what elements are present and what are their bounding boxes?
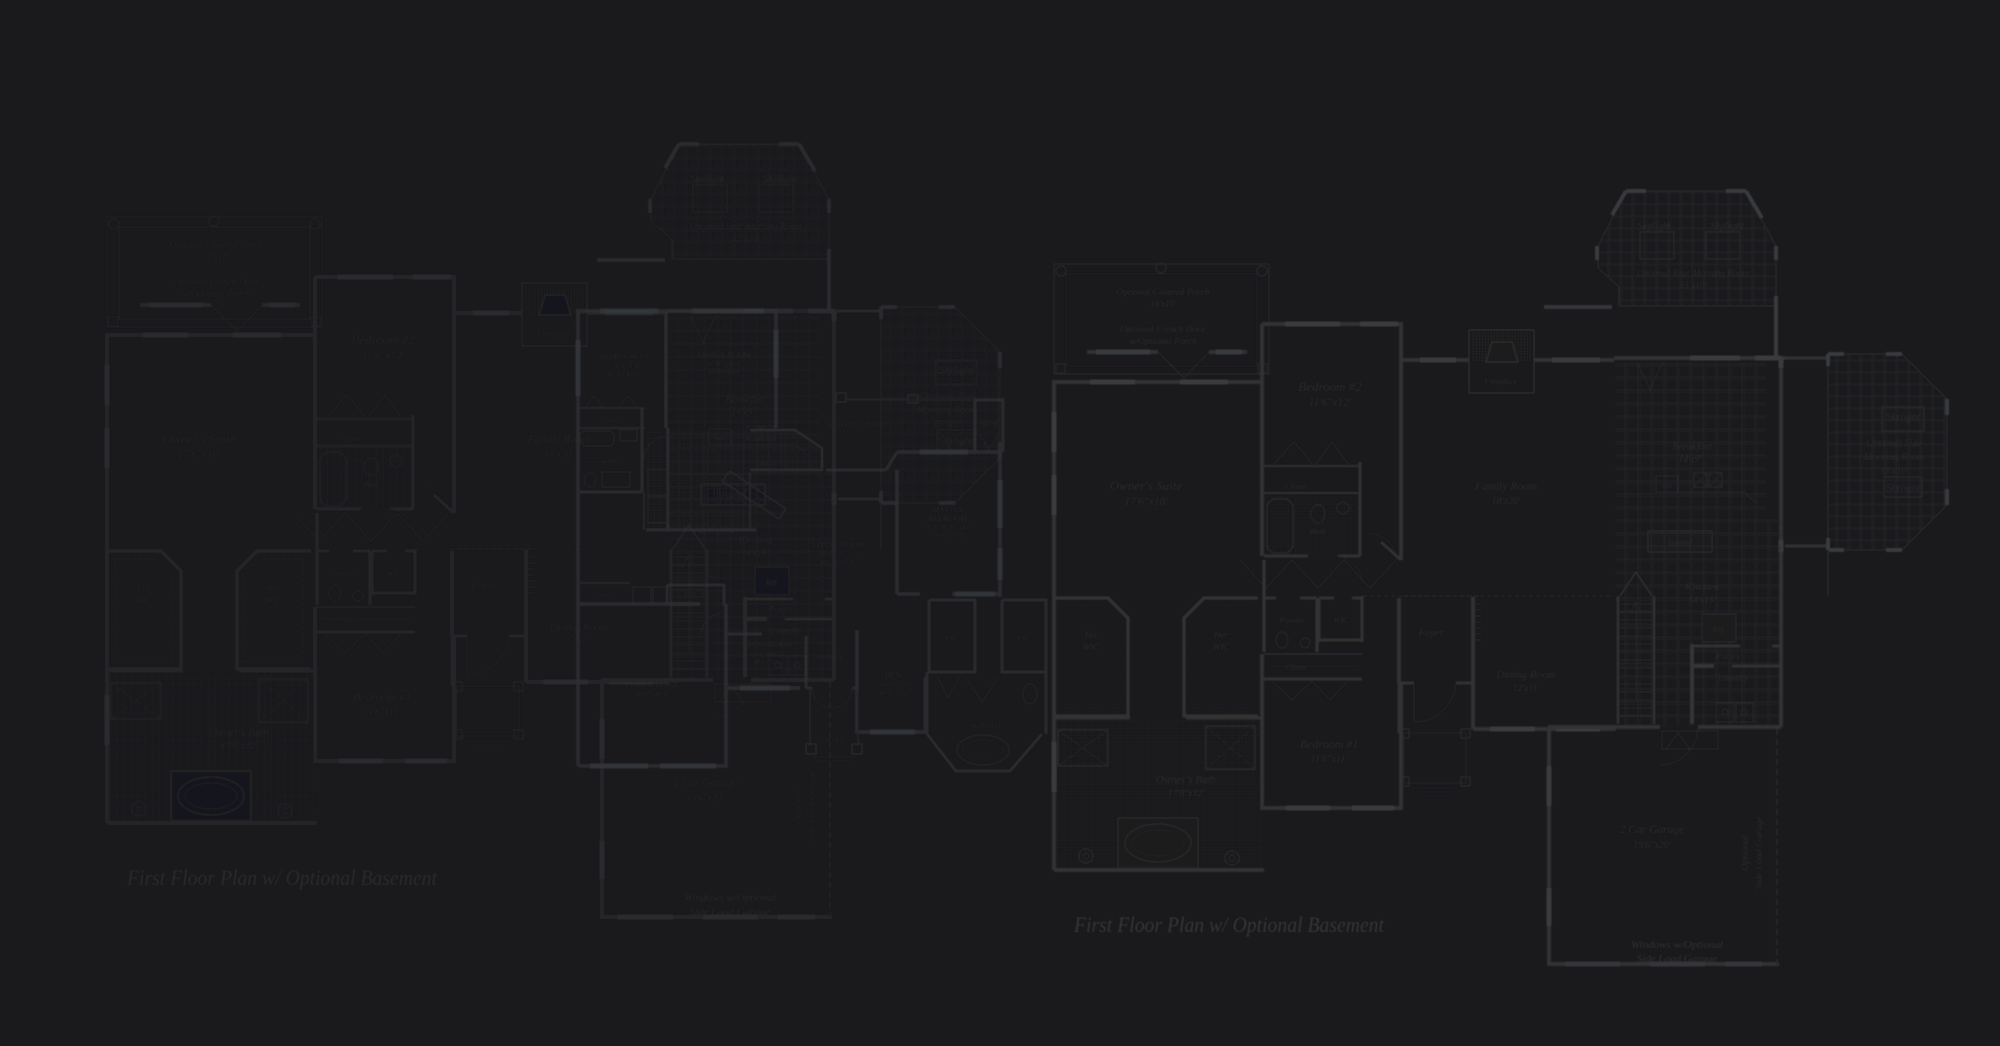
svg-text:W.I.C.: W.I.C. xyxy=(944,635,961,642)
svg-text:BREAKFAST: BREAKFAST xyxy=(757,461,794,468)
svg-text:MASTER: MASTER xyxy=(932,505,964,514)
svg-text:11'-4"x13'-0": 11'-4"x13'-0" xyxy=(604,362,641,370)
svg-text:(8'-0 CLG): (8'-0 CLG) xyxy=(754,659,781,666)
svg-text:11'-4"x14'-7": 11'-4"x14'-7" xyxy=(750,651,785,658)
svg-text:M. BATH: M. BATH xyxy=(970,721,1001,730)
svg-text:19'-6"x20'-6": 19'-6"x20'-6" xyxy=(635,691,670,698)
svg-text:16'-0"x19'-0": 16'-0"x19'-0" xyxy=(705,360,743,368)
svg-text:BEDROOM: BEDROOM xyxy=(929,514,968,523)
svg-text:13'-0"x17'-0": 13'-0"x17'-0" xyxy=(931,532,966,539)
svg-text:W: W xyxy=(709,574,715,580)
svg-text:DINING ROOM: DINING ROOM xyxy=(741,640,792,649)
svg-text:CLOSET: CLOSET xyxy=(593,593,616,599)
svg-text:(9'-0 TRAY CLG): (9'-0 TRAY CLG) xyxy=(926,524,970,531)
svg-text:(8'-0 CLG): (8'-0 CLG) xyxy=(880,690,907,697)
svg-text:(9'-0 CLG): (9'-0 CLG) xyxy=(702,538,731,545)
svg-text:15'-3"x15'-3": 15'-3"x15'-3" xyxy=(821,559,856,566)
svg-text:UTILITY: UTILITY xyxy=(684,592,710,599)
svg-text:11'-0"x12'-0": 11'-0"x12'-0" xyxy=(876,682,911,689)
svg-text:(12'-0 CLG +/-): (12'-0 CLG +/-) xyxy=(819,551,857,558)
svg-text:BEDROOM #3: BEDROOM #3 xyxy=(599,352,648,361)
svg-text:W.I.C.: W.I.C. xyxy=(1016,635,1033,642)
svg-text:(9'-0 CLG): (9'-0 CLG) xyxy=(708,368,740,376)
svg-text:(8'-0 CLG): (8'-0 CLG) xyxy=(607,370,639,378)
svg-text:ENTRY: ENTRY xyxy=(822,737,844,744)
svg-text:BATH: BATH xyxy=(602,458,619,465)
svg-text:LIVING ROOM: LIVING ROOM xyxy=(812,540,864,549)
svg-text:NOOK: NOOK xyxy=(767,469,786,476)
svg-text:COVERED PATIO: COVERED PATIO xyxy=(829,420,887,429)
svg-text:DEN: DEN xyxy=(885,671,902,680)
svg-text:2 CAR GARAGE: 2 CAR GARAGE xyxy=(625,680,680,689)
svg-text:BATH: BATH xyxy=(981,421,998,428)
svg-text:FAMILY ROOM: FAMILY ROOM xyxy=(697,350,751,359)
svg-text:FOYER: FOYER xyxy=(818,653,843,662)
svg-text:CLOSET: CLOSET xyxy=(600,418,625,425)
